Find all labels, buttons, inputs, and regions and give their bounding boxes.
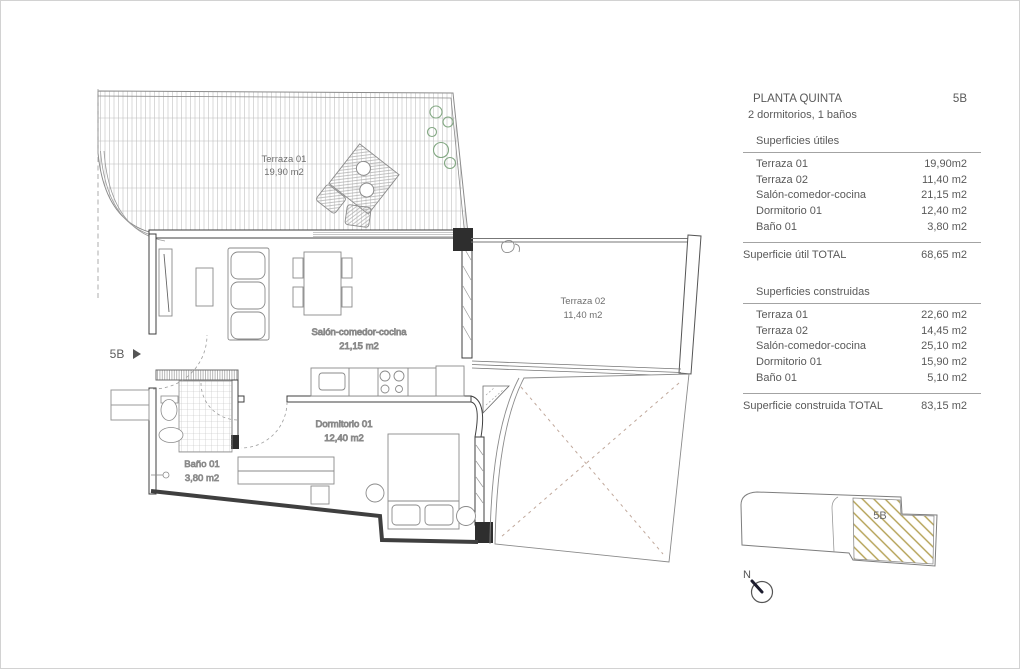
built-total-row: Superficie construida TOTAL 83,15 m2 <box>743 393 981 413</box>
drain-marker-icon <box>163 472 169 478</box>
surface-value: 12,40 m2 <box>921 205 967 218</box>
surface-value: 25,10 m2 <box>921 340 967 353</box>
kitchen-sink-icon <box>319 373 345 390</box>
fridge-icon <box>436 366 464 396</box>
kitchen-counter-icon <box>311 366 464 396</box>
salon-label: Salón-comedor-cocina <box>311 327 407 338</box>
wardrobe-icon <box>238 457 334 484</box>
table-row: Baño 01 3,80 m2 <box>743 219 981 235</box>
bano-area: 3,80 m2 <box>185 473 219 484</box>
surface-label: Dormitorio 01 <box>756 356 822 369</box>
surface-value: 15,90 m2 <box>921 356 967 369</box>
shower-tiles <box>179 381 232 452</box>
table-row: Terraza 02 11,40 m2 <box>743 173 981 189</box>
sofa-icon <box>228 248 269 340</box>
useful-surfaces-section: Superficies útiles Terraza 01 19,90m2 Te… <box>743 135 981 262</box>
dormitorio-area: 12,40 m2 <box>324 433 364 444</box>
entry-unit-label: 5B <box>110 347 125 361</box>
total-label: Superficie útil TOTAL <box>743 249 846 262</box>
surface-value: 22,60 m2 <box>921 309 967 322</box>
table-row: Baño 01 5,10 m2 <box>743 370 981 386</box>
table-row: Salón-comedor-cocina 25,10 m2 <box>743 339 981 355</box>
surface-label: Terraza 02 <box>756 174 808 187</box>
bano-label: Baño 01 <box>184 459 219 470</box>
surface-label: Terraza 01 <box>756 158 808 171</box>
washbasin-icon <box>159 428 183 443</box>
toilet-icon <box>161 400 177 421</box>
surface-value: 11,40 m2 <box>922 174 967 187</box>
built-surfaces-section: Superficies construidas Terraza 01 22,60… <box>743 286 981 413</box>
surface-label: Baño 01 <box>756 221 797 234</box>
terrace2-bottom-railing <box>472 361 681 376</box>
terraza-02-label: Terraza 02 <box>561 296 606 307</box>
roof-area <box>490 374 689 562</box>
built-surfaces-heading: Superficies construidas <box>743 286 981 304</box>
total-label: Superficie construida TOTAL <box>743 400 883 413</box>
terraza-01-label: Terraza 01 <box>262 154 307 165</box>
surface-label: Dormitorio 01 <box>756 205 822 218</box>
surface-label: Salón-comedor-cocina <box>756 189 866 202</box>
surface-label: Terraza 01 <box>756 309 808 322</box>
plan-title: PLANTA QUINTA <box>753 93 842 106</box>
terraza-02: Terraza 02 11,40 m2 <box>471 235 701 376</box>
surface-value: 14,45 m2 <box>921 325 967 338</box>
north-compass: N <box>743 569 772 603</box>
surface-label: Terraza 02 <box>756 325 808 338</box>
total-value: 68,65 m2 <box>921 249 967 262</box>
surface-value: 19,90m2 <box>924 158 967 171</box>
dormitorio-label: Dormitorio 01 <box>315 419 372 430</box>
bathroom: Baño 01 3,80 m2 <box>151 381 232 484</box>
dining-table-icon <box>293 252 352 315</box>
table-row: Dormitorio 01 15,90 m2 <box>743 355 981 371</box>
key-plan-unit-hatch <box>853 498 934 564</box>
surface-label: Baño 01 <box>756 372 797 385</box>
table-row: Terraza 01 19,90m2 <box>743 157 981 173</box>
north-label: N <box>743 569 751 581</box>
bedside-unit-icon <box>311 486 329 504</box>
bedside-table-icon <box>366 484 384 502</box>
table-row: Terraza 01 22,60 m2 <box>743 308 981 324</box>
terraza-02-area: 11,40 m2 <box>564 310 603 321</box>
entry-arrow-icon <box>133 349 141 359</box>
total-value: 83,15 m2 <box>921 400 967 413</box>
key-plan-unit-label: 5B <box>873 510 886 522</box>
surface-value: 21,15 m2 <box>921 189 967 202</box>
terrace2-right-wall <box>679 235 701 374</box>
wall-niche <box>483 386 509 413</box>
floor-plan-page: Terraza 01 19,90 m2 <box>0 0 1020 669</box>
plan-subtitle: 2 dormitorios, 1 baños <box>743 109 981 122</box>
bedroom-door-swing <box>241 402 287 448</box>
surface-label: Salón-comedor-cocina <box>756 340 866 353</box>
hob-burner-icon <box>380 371 390 381</box>
side-table-icon <box>196 268 213 306</box>
bedside-table-icon <box>457 507 476 526</box>
table-row: Terraza 02 14,45 m2 <box>743 324 981 340</box>
useful-surfaces-heading: Superficies útiles <box>743 135 981 153</box>
terraza-01-area: 19,90 m2 <box>264 167 304 178</box>
title-block: PLANTA QUINTA 5B 2 dormitorios, 1 baños … <box>743 93 981 413</box>
useful-total-row: Superficie útil TOTAL 68,65 m2 <box>743 242 981 262</box>
tv-unit-icon <box>159 249 172 316</box>
salon-area: 21,15 m2 <box>339 341 379 352</box>
key-plan: 5B <box>741 492 937 566</box>
surface-value: 3,80 m2 <box>927 221 967 234</box>
bed-icon <box>388 434 459 529</box>
surface-value: 5,10 m2 <box>927 372 967 385</box>
unit-label: 5B <box>953 93 967 106</box>
table-row: Salón-comedor-cocina 21,15 m2 <box>743 188 981 204</box>
table-row: Dormitorio 01 12,40 m2 <box>743 204 981 220</box>
